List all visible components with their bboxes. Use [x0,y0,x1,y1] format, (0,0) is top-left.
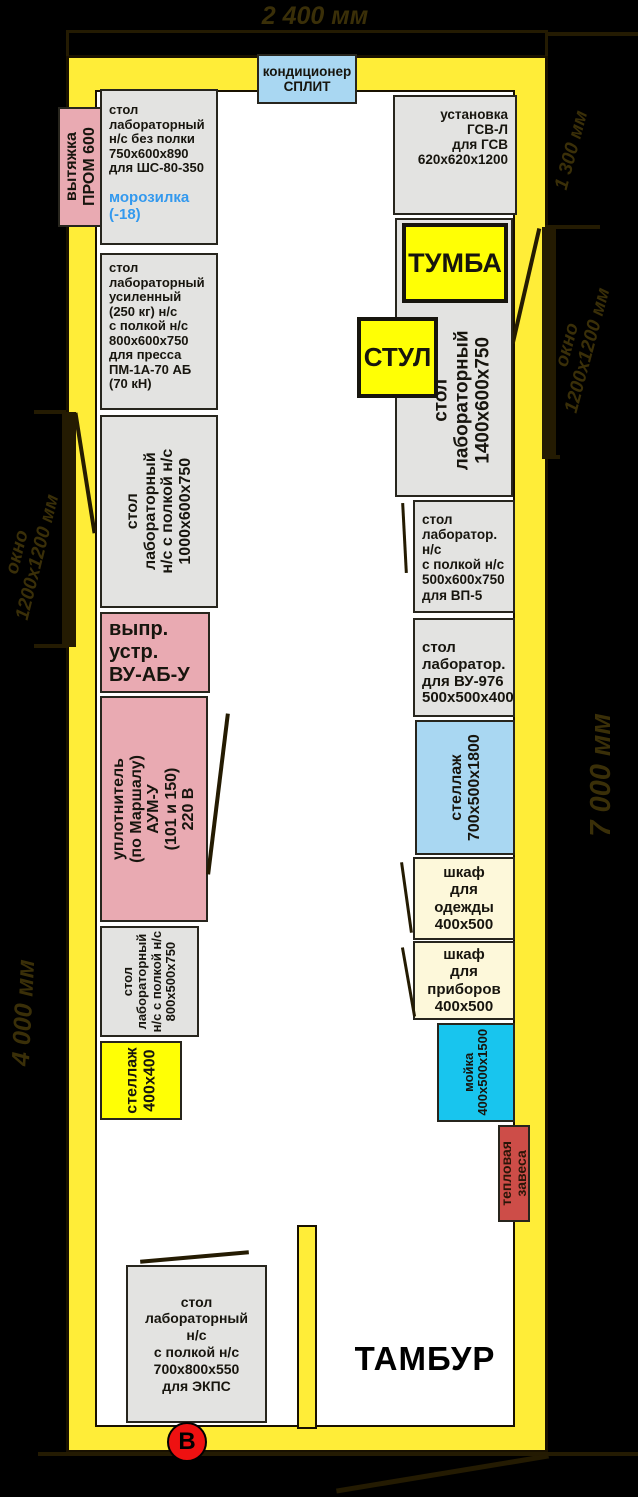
rack-700x500x1800: стеллаж 700х500х1800 [415,720,515,855]
table-1000x600x750: стол лабораторный н/с с полкой н/с 1000х… [100,415,218,608]
freezer-temp: (-18) [109,207,141,224]
window-right-label: окно 1200х1200 мм [550,250,606,445]
dimension-top-label: 2 400 мм [230,2,400,31]
floor-plan: 2 400 мм 1 300 мм 7 000 мм 4 000 мм окно… [0,0,638,1497]
entrance-door-line [336,1453,549,1493]
dimension-right-top-tick [548,32,638,36]
table-vu976: стол лаборатор. для ВУ-976 500х500х400 [413,618,515,717]
wardrobe-cabinet: шкаф для одежды 400х500 [413,857,515,940]
table-shs-80-350: стол лабораторный н/с без полки 750х600х… [100,89,218,245]
compactor-aum-u: уплотнитель (по Маршалу) АУМ-У (101 и 15… [100,696,208,922]
window-left-bar [62,412,76,647]
table-ekps: стол лабораторный н/с с полкой н/с 700х8… [126,1265,267,1423]
freezer-label: морозилка [109,190,189,207]
dimension-top-line [66,30,548,33]
table-press-pm-1a-70: стол лабораторный усиленный (250 кг) н/с… [100,253,218,410]
window-right-tick-bottom [542,455,560,459]
window-left-label: окно 1200х1200 мм [0,450,56,660]
exhaust-hood: вытяжка ПРОМ 600 [58,107,102,227]
sink: мойка 400х500х1500 [437,1023,515,1122]
stul: СТУЛ [357,317,438,398]
window-left-tick-top [34,410,66,414]
table-vp5: стол лаборатор. н/с с полкой н/с 500х600… [413,500,515,613]
partition-wall [297,1225,317,1429]
tambur-label: ТАМБУР [330,1340,520,1378]
air-conditioner: кондиционер СПЛИТ [257,54,357,104]
dimension-right-top-label: 1 300 мм [546,60,598,240]
instrument-cabinet: шкаф для приборов 400х500 [413,941,515,1020]
window-right-tick-top [545,225,600,229]
rack-400x400: стеллаж 400х400 [100,1041,182,1120]
table-800x500x750: стол лабораторный н/с с полкой н/с 800х5… [100,926,199,1037]
rectifier-vu-ab-u: выпр. устр. ВУ-АБ-У [100,612,210,693]
tumba: ТУМБА [402,223,508,303]
dimension-left-bottom-label: 4 000 мм [0,925,48,1100]
gsv-unit: установка ГСВ-Л для ГСВ 620х620х1200 [393,95,517,215]
dimension-top-tick-left [66,30,69,56]
thermal-curtain: тепловая завеса [498,1125,530,1222]
entrance-mark: В [167,1422,207,1462]
dimension-right-full-label: 7 000 мм [572,680,632,870]
